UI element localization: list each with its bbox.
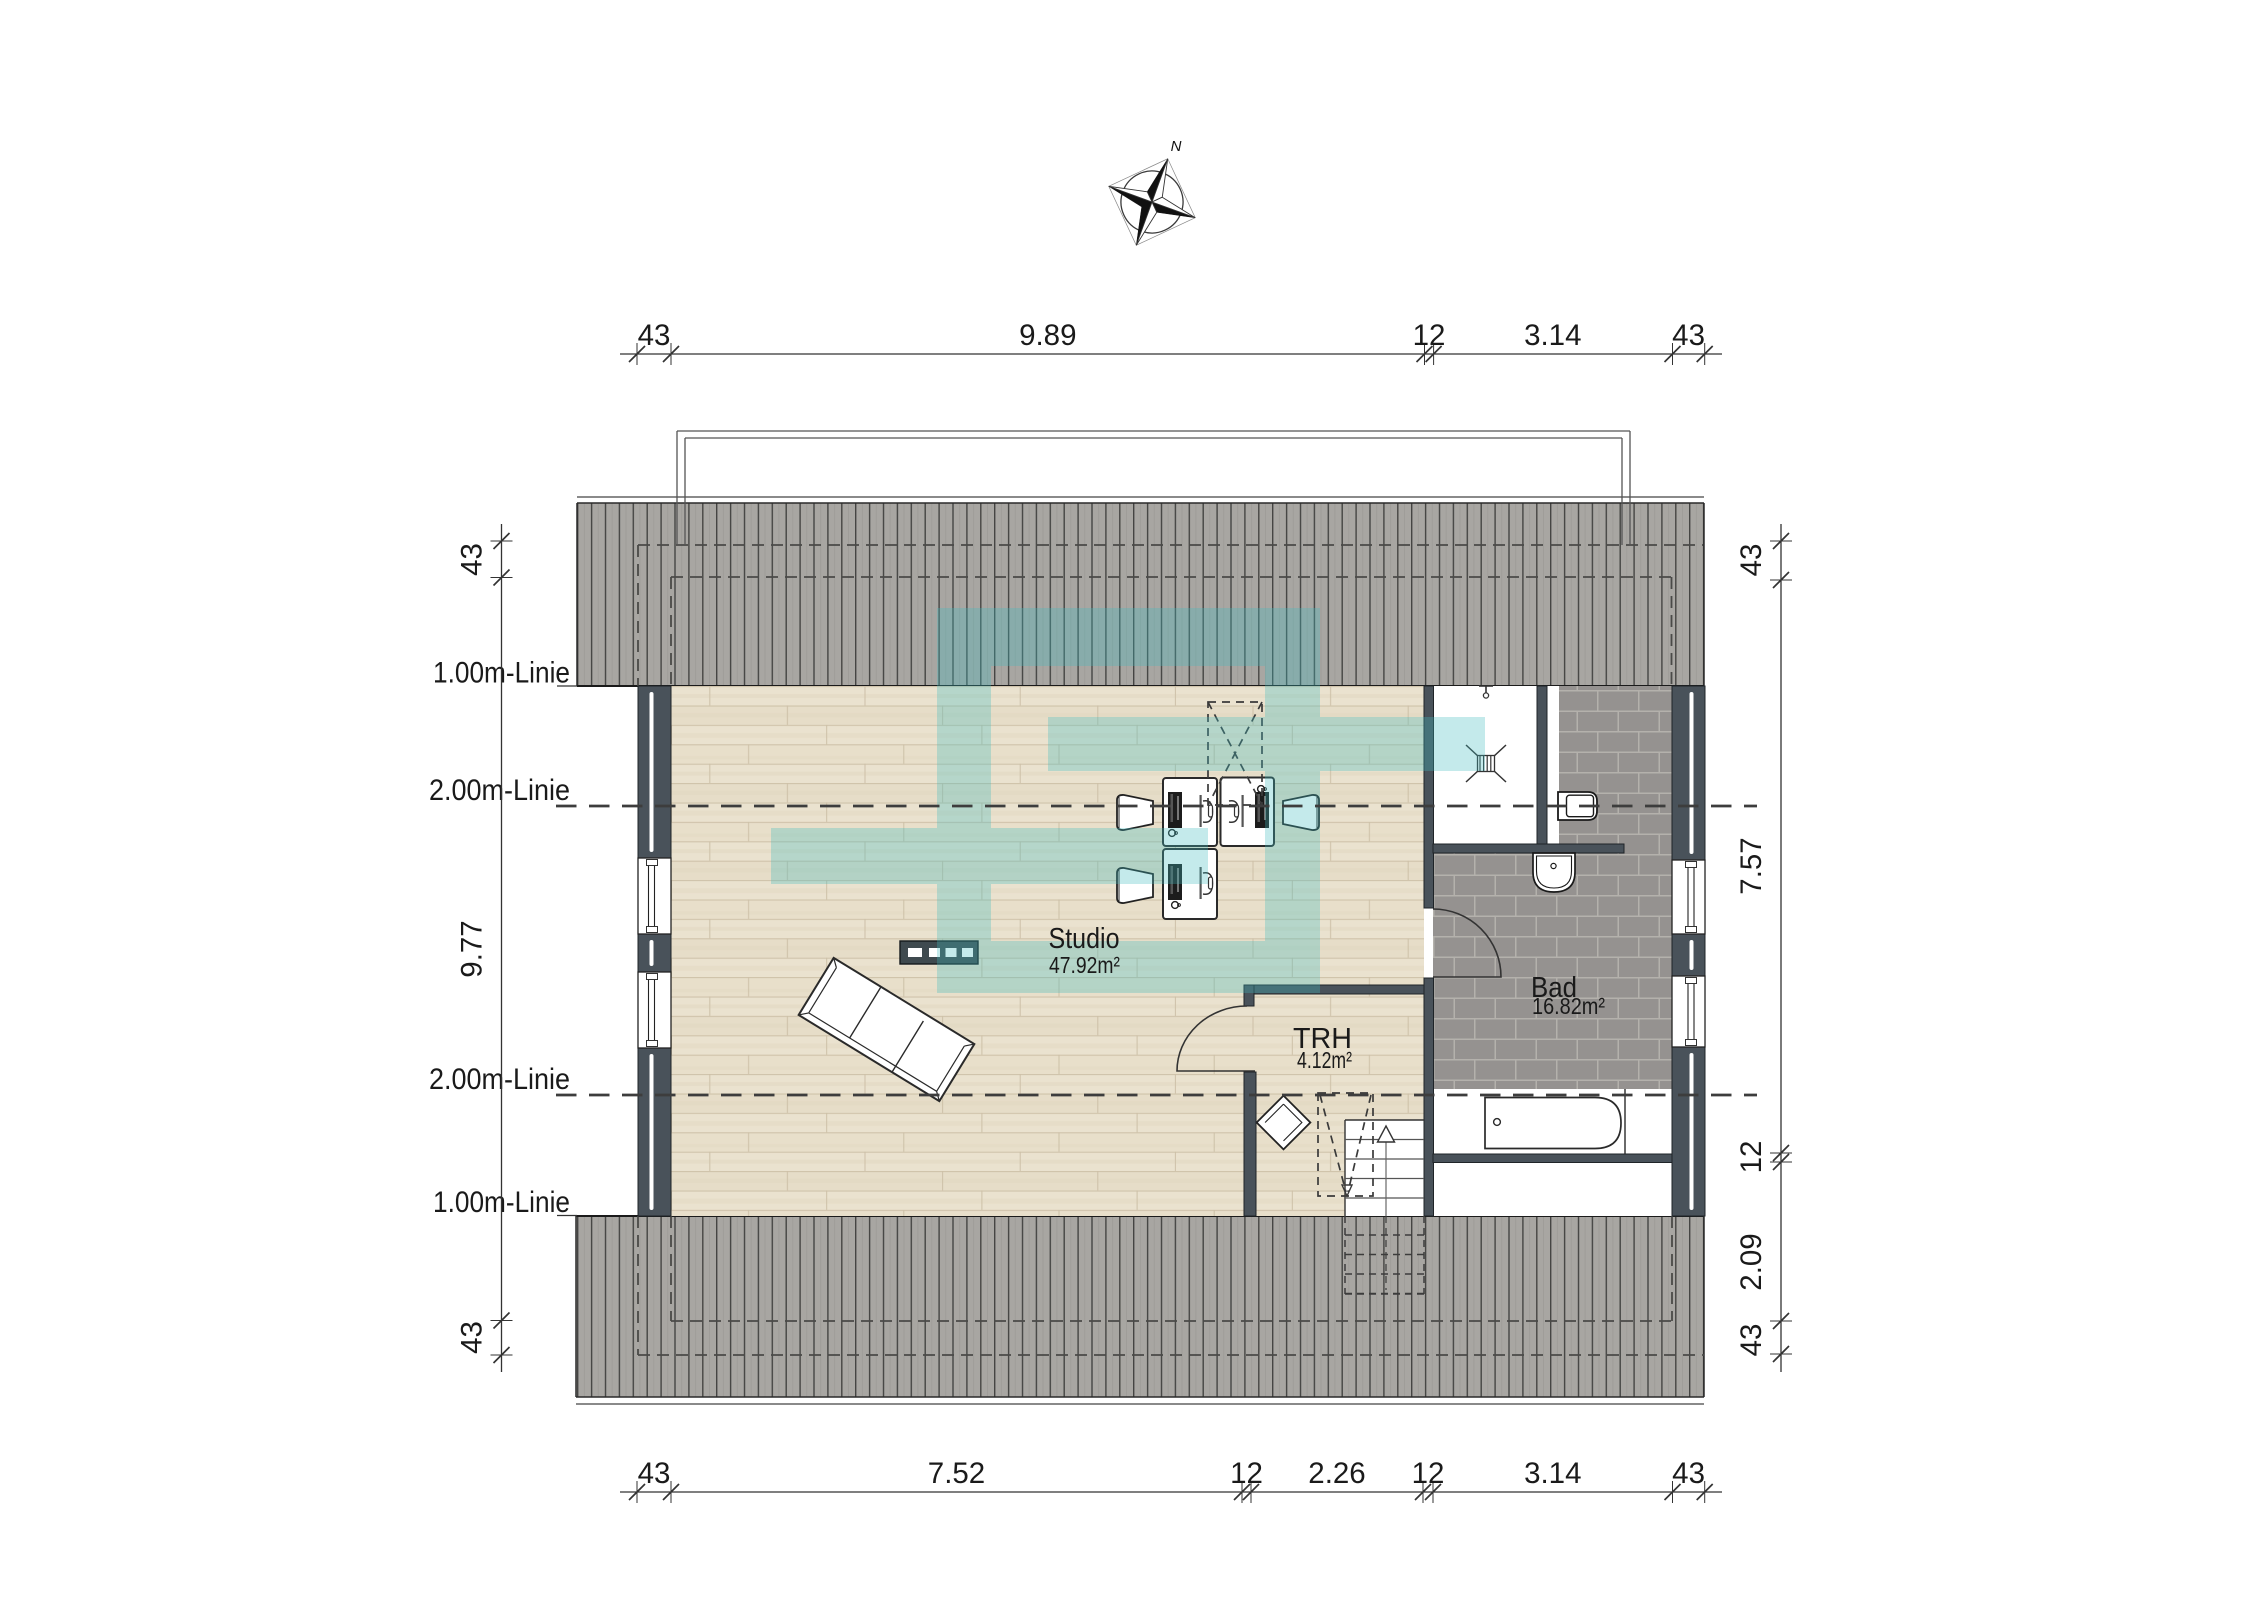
svg-text:2.26: 2.26 (1308, 1457, 1365, 1490)
svg-text:12: 12 (1412, 1457, 1445, 1490)
svg-text:Studio: Studio (1049, 923, 1120, 955)
svg-text:43: 43 (1735, 1324, 1768, 1357)
svg-text:43: 43 (1735, 544, 1768, 577)
svg-text:12: 12 (1230, 1457, 1263, 1490)
svg-text:47.92m²: 47.92m² (1049, 952, 1120, 978)
svg-text:9.89: 9.89 (1019, 319, 1076, 352)
svg-text:2.09: 2.09 (1735, 1233, 1768, 1290)
svg-text:N: N (1171, 138, 1182, 155)
svg-text:7.52: 7.52 (928, 1457, 985, 1490)
svg-text:4.12m²: 4.12m² (1297, 1047, 1352, 1073)
svg-text:43: 43 (638, 1457, 671, 1490)
svg-text:43: 43 (638, 319, 671, 352)
svg-text:12: 12 (1413, 319, 1446, 352)
svg-text:7.57: 7.57 (1735, 837, 1768, 894)
svg-text:43: 43 (1672, 1457, 1705, 1490)
svg-text:2.00m-Linie: 2.00m-Linie (429, 774, 570, 807)
svg-text:2.00m-Linie: 2.00m-Linie (429, 1063, 570, 1096)
svg-text:16.82m²: 16.82m² (1532, 993, 1605, 1019)
svg-text:43: 43 (456, 1321, 489, 1354)
svg-text:43: 43 (456, 543, 489, 576)
svg-text:3.14: 3.14 (1524, 1457, 1581, 1490)
svg-text:12: 12 (1735, 1141, 1768, 1174)
svg-text:9.77: 9.77 (456, 920, 489, 977)
svg-text:43: 43 (1672, 319, 1705, 352)
svg-text:3.14: 3.14 (1524, 319, 1581, 352)
